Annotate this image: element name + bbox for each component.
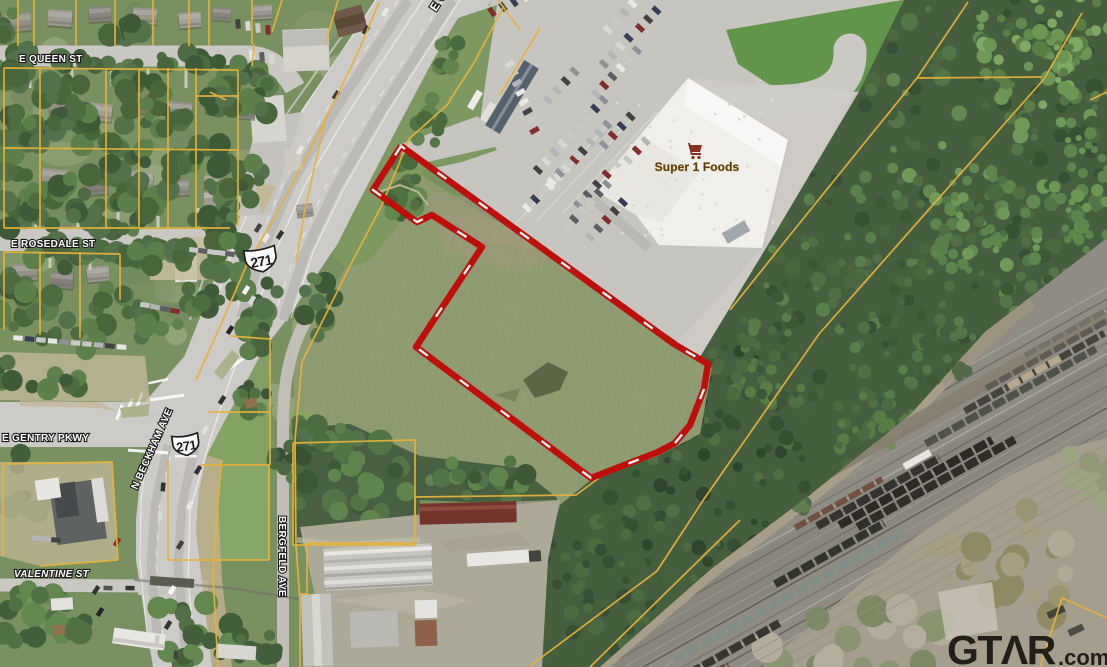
svg-text:Super 1 Foods: Super 1 Foods <box>655 160 740 174</box>
svg-text:BERGFELD AVE: BERGFELD AVE <box>276 516 287 597</box>
svg-text:.com: .com <box>1058 645 1107 667</box>
svg-text:E ROSEDALE ST: E ROSEDALE ST <box>11 239 95 250</box>
svg-text:E QUEEN ST: E QUEEN ST <box>19 54 83 65</box>
svg-text:VALENTINE ST: VALENTINE ST <box>14 569 90 580</box>
svg-text:GTΛR: GTΛR <box>947 627 1056 667</box>
svg-text:E GENTRY PKWY: E GENTRY PKWY <box>2 433 89 444</box>
svg-text:271: 271 <box>175 437 197 455</box>
